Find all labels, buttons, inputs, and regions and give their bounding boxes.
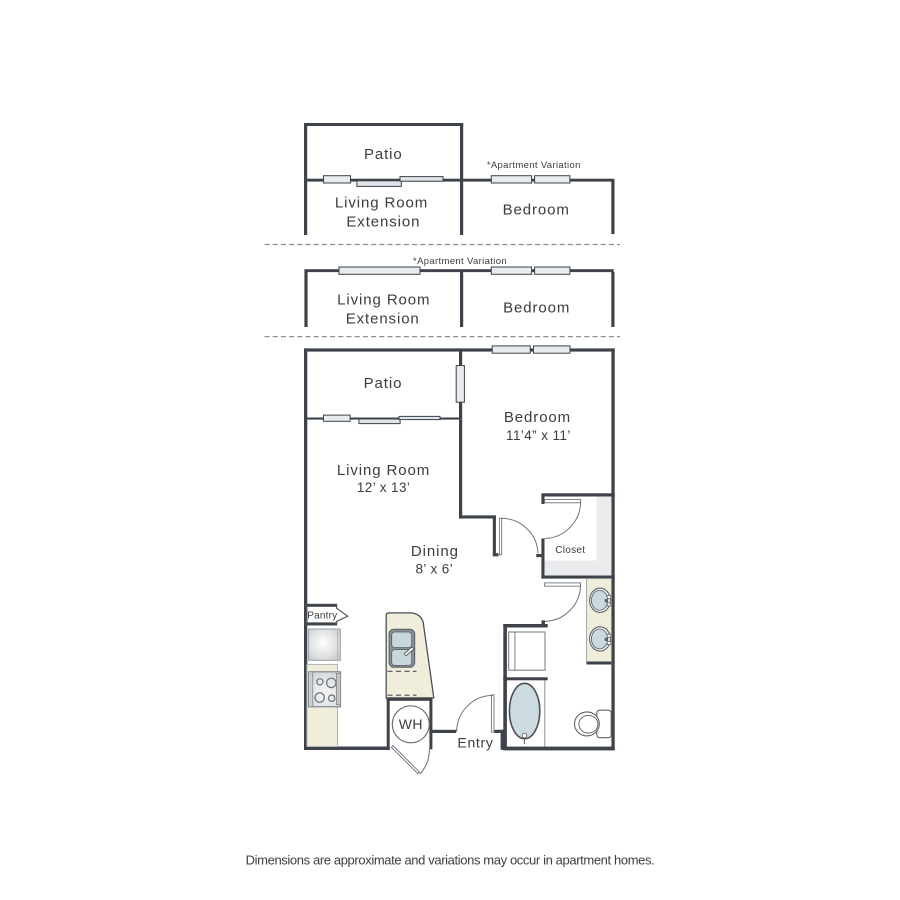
svg-text:Closet: Closet [555, 545, 585, 556]
svg-text:Bedroom: Bedroom [504, 409, 571, 426]
svg-text:Pantry: Pantry [307, 611, 337, 622]
svg-text:Living Room: Living Room [337, 462, 430, 479]
svg-text:Bedroom: Bedroom [503, 201, 570, 218]
svg-text:Dining: Dining [411, 543, 459, 560]
svg-text:8’ x 6’: 8’ x 6’ [416, 562, 454, 577]
svg-text:Patio: Patio [364, 146, 403, 163]
svg-text:11’4” x 11’: 11’4” x 11’ [506, 428, 571, 443]
svg-text:*Apartment Variation: *Apartment Variation [487, 160, 581, 171]
svg-text:Extension: Extension [346, 213, 420, 230]
svg-text:Patio: Patio [364, 375, 403, 392]
svg-text:Living Room: Living Room [337, 292, 430, 309]
svg-text:*Apartment Variation: *Apartment Variation [413, 256, 507, 267]
svg-text:12’ x 13’: 12’ x 13’ [357, 480, 410, 495]
svg-text:Entry: Entry [457, 735, 493, 751]
svg-text:Dimensions are approximate and: Dimensions are approximate and variation… [246, 853, 655, 868]
svg-text:Living Room: Living Room [335, 195, 428, 212]
svg-text:WH: WH [399, 716, 423, 732]
svg-text:Bedroom: Bedroom [503, 299, 570, 316]
svg-text:Extension: Extension [346, 311, 420, 328]
